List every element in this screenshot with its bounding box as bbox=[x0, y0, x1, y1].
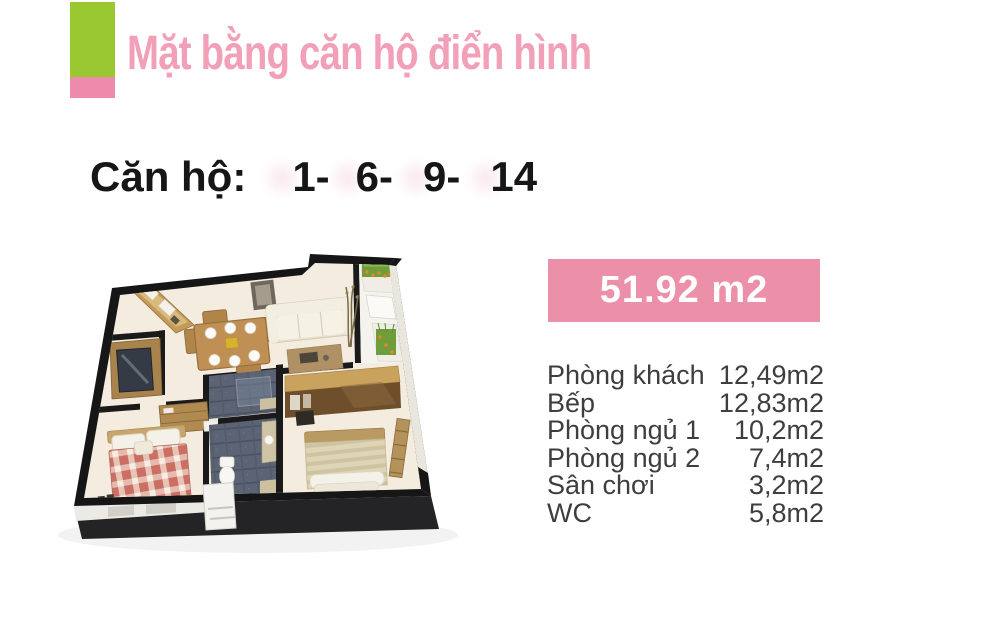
bathrooms-wc bbox=[204, 369, 276, 501]
room-row: WC 5,8m2 bbox=[547, 500, 824, 528]
apartment-unit-number: 9- bbox=[423, 153, 460, 201]
apartment-unit-number: 1- bbox=[292, 153, 329, 201]
apartment-unit-number: 14 bbox=[490, 153, 537, 201]
entrance-door bbox=[203, 483, 236, 530]
room-name: Phòng khách bbox=[547, 362, 705, 390]
room-row: Sân chơi 3,2m2 bbox=[547, 472, 824, 500]
room-area: 12,49m2 bbox=[719, 362, 824, 390]
page-title: Mặt bằng căn hộ điển hình bbox=[127, 26, 591, 81]
page: Mặt bằng căn hộ điển hình Căn hộ: 1- 6- … bbox=[0, 0, 1000, 640]
room-name: Sân chơi bbox=[547, 472, 655, 500]
room-row: Phòng khách 12,49m2 bbox=[547, 362, 824, 390]
room-area: 5,8m2 bbox=[749, 500, 824, 528]
room-row: Phòng ngủ 2 7,4m2 bbox=[547, 445, 824, 473]
accent-green-block bbox=[70, 2, 115, 77]
total-area-value: 51.92 m2 bbox=[600, 269, 769, 312]
total-area-badge: 51.92 m2 bbox=[548, 259, 820, 322]
room-row: Bếp 12,83m2 bbox=[547, 390, 824, 418]
room-name: WC bbox=[547, 500, 592, 528]
room-area: 7,4m2 bbox=[749, 445, 824, 473]
floor-plan-3d-render bbox=[40, 235, 510, 585]
apartment-units-label: Căn hộ: bbox=[90, 153, 246, 201]
room-area: 3,2m2 bbox=[749, 472, 824, 500]
room-name: Phòng ngủ 2 bbox=[547, 445, 700, 473]
kitchen-cabinet-tv bbox=[110, 339, 162, 399]
apartment-units-line: Căn hộ: 1- 6- 9- 14 bbox=[90, 153, 537, 201]
room-name: Bếp bbox=[547, 390, 595, 418]
apartment-unit-number: 6- bbox=[356, 153, 393, 201]
room-area: 10,2m2 bbox=[734, 417, 824, 445]
accent-pink-block bbox=[70, 77, 115, 98]
room-row: Phòng ngủ 1 10,2m2 bbox=[547, 417, 824, 445]
room-area-list: Phòng khách 12,49m2 Bếp 12,83m2 Phòng ng… bbox=[547, 362, 824, 527]
room-area: 12,83m2 bbox=[719, 390, 824, 418]
room-name: Phòng ngủ 1 bbox=[547, 417, 700, 445]
